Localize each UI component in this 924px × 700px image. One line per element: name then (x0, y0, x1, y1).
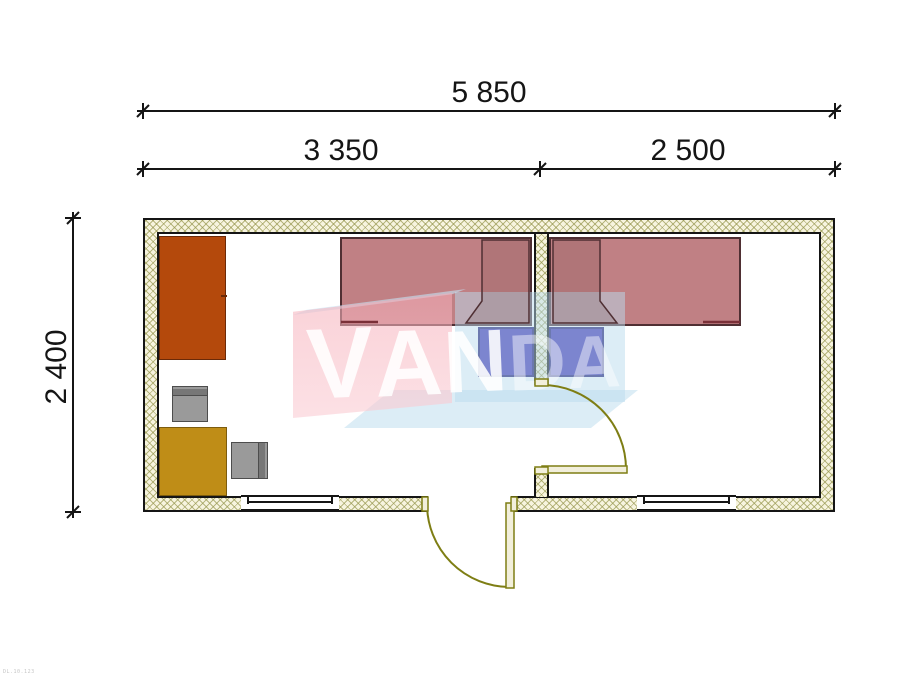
window-right (637, 495, 736, 511)
nightstand-left (478, 327, 534, 377)
stool-2 (231, 442, 268, 479)
partition-wall-stub (534, 468, 549, 497)
window-jamb (331, 497, 333, 504)
bed-left (340, 237, 532, 326)
entrance-door-leaf (506, 503, 514, 588)
window-jamb (247, 497, 249, 504)
window-left (241, 495, 339, 511)
window-glazing (247, 501, 333, 503)
window-jamb (643, 497, 645, 504)
entrance-door-opening (428, 494, 511, 514)
partition-wall (534, 234, 549, 385)
stool-backrest (258, 443, 265, 478)
entrance-door-arc (427, 504, 510, 587)
desk-table (159, 427, 227, 496)
window-glazing (643, 501, 730, 503)
dimension-depth: 2 400 (40, 267, 74, 467)
stool-backrest (173, 389, 207, 396)
floor-plan-canvas: 5 850 3 350 2 500 2 400 V A N D A (0, 0, 924, 700)
dimension-left-section: 3 350 (241, 134, 441, 168)
bed-right (549, 237, 741, 326)
dimension-overall-width: 5 850 (389, 76, 589, 110)
stool-1 (172, 386, 208, 422)
nightstand-right (549, 327, 604, 377)
window-jamb (728, 497, 730, 504)
dimension-right-section: 2 500 (588, 134, 788, 168)
corner-note: DL.10.123 (3, 669, 35, 675)
wardrobe (159, 236, 226, 360)
